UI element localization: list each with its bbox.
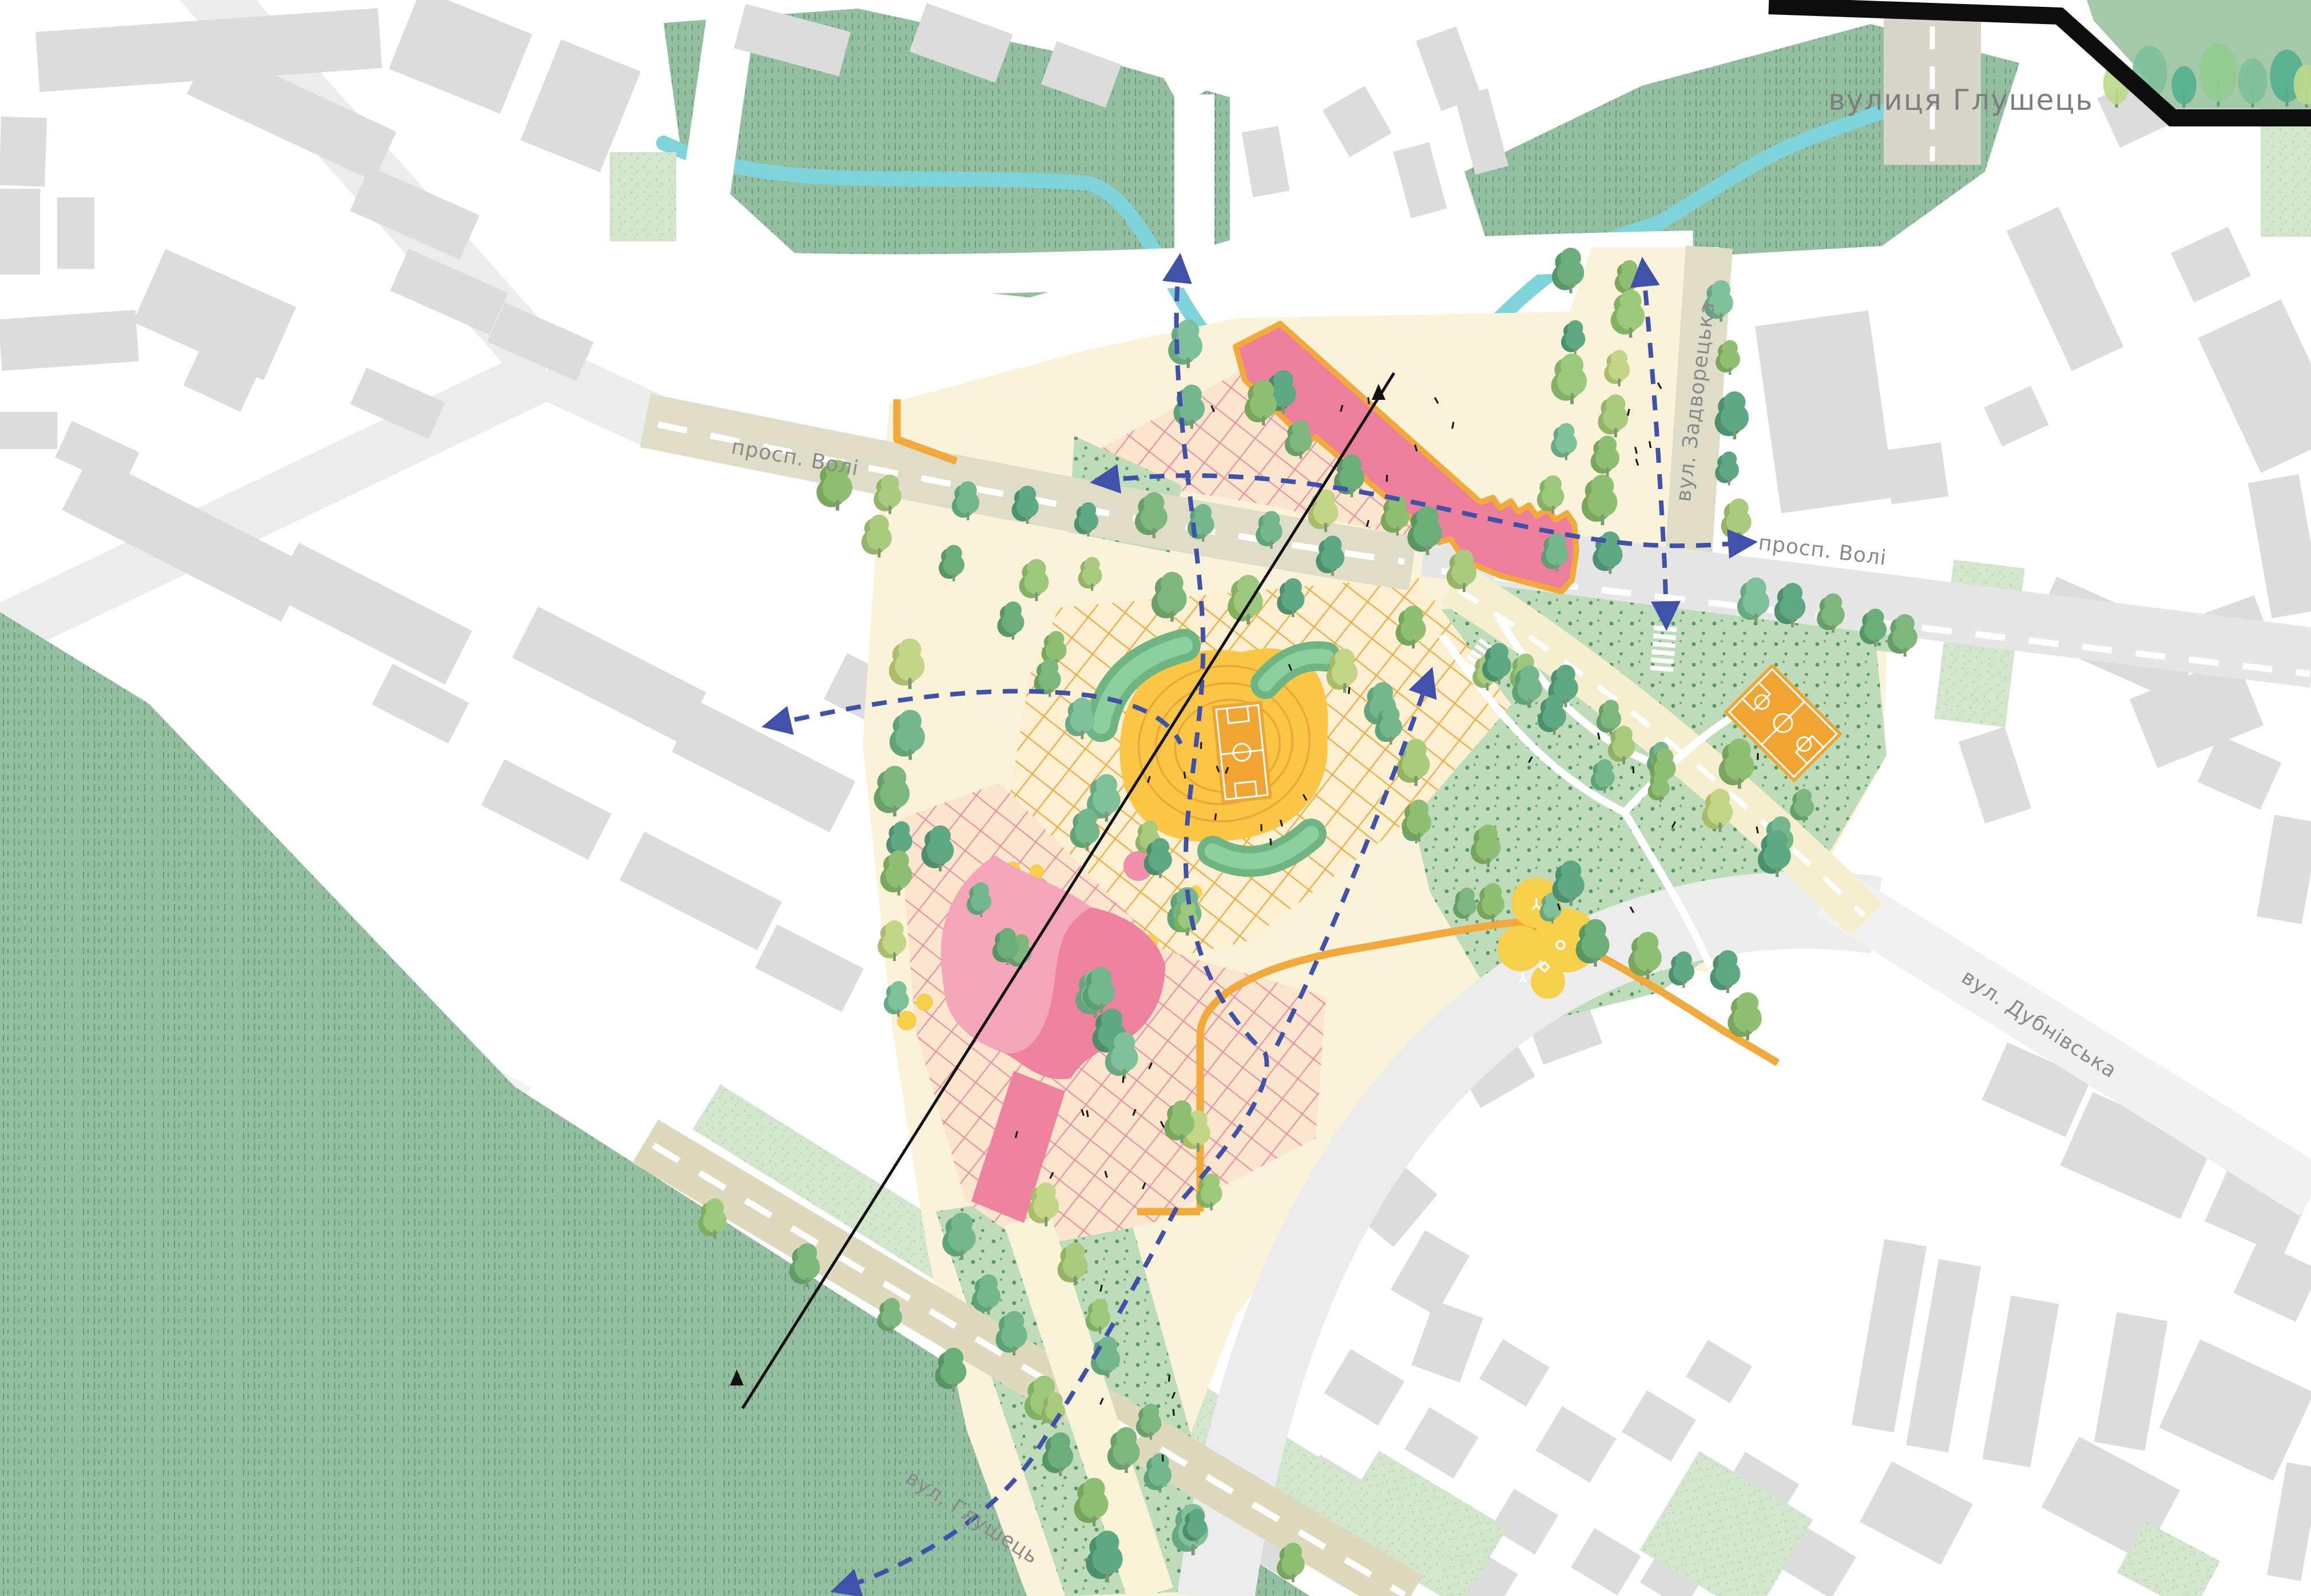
person-mark-icon: [1650, 441, 1651, 448]
context-building: [0, 310, 139, 371]
person-mark-icon: [1349, 687, 1349, 694]
person-mark-icon: [1270, 839, 1271, 845]
person-mark-icon: [1169, 1375, 1169, 1381]
person-mark-icon: [1757, 827, 1758, 833]
person-mark-icon: [1123, 1076, 1123, 1083]
central-lawn-bowl: [1120, 649, 1328, 842]
person-mark-icon: [1173, 1409, 1174, 1416]
person-mark-icon: [1184, 772, 1185, 779]
context-building: [0, 412, 57, 449]
speckle-green: [610, 152, 676, 241]
person-mark-icon: [1162, 1455, 1163, 1462]
person-mark-icon: [1452, 422, 1454, 429]
person-mark-icon: [1387, 475, 1387, 482]
person-mark-icon: [1215, 813, 1216, 820]
context-building: [1884, 443, 1948, 505]
context-building: [57, 197, 94, 269]
street-label: вулиця Глушець: [1828, 84, 2094, 117]
elevation-tree-icon: [2171, 66, 2196, 105]
context-building: [0, 189, 40, 275]
person-mark-icon: [1087, 1110, 1088, 1117]
person-mark-icon: [1368, 397, 1369, 404]
person-mark-icon: [1633, 767, 1634, 773]
elevation-tree-icon: [2199, 43, 2237, 102]
masterplan-map: вулиця Глушець просп. Волі вул. Задворец…: [0, 0, 2311, 1596]
elevation-tree-icon: [2238, 58, 2267, 104]
sports-court: [1212, 701, 1272, 804]
context-building: [0, 117, 47, 187]
